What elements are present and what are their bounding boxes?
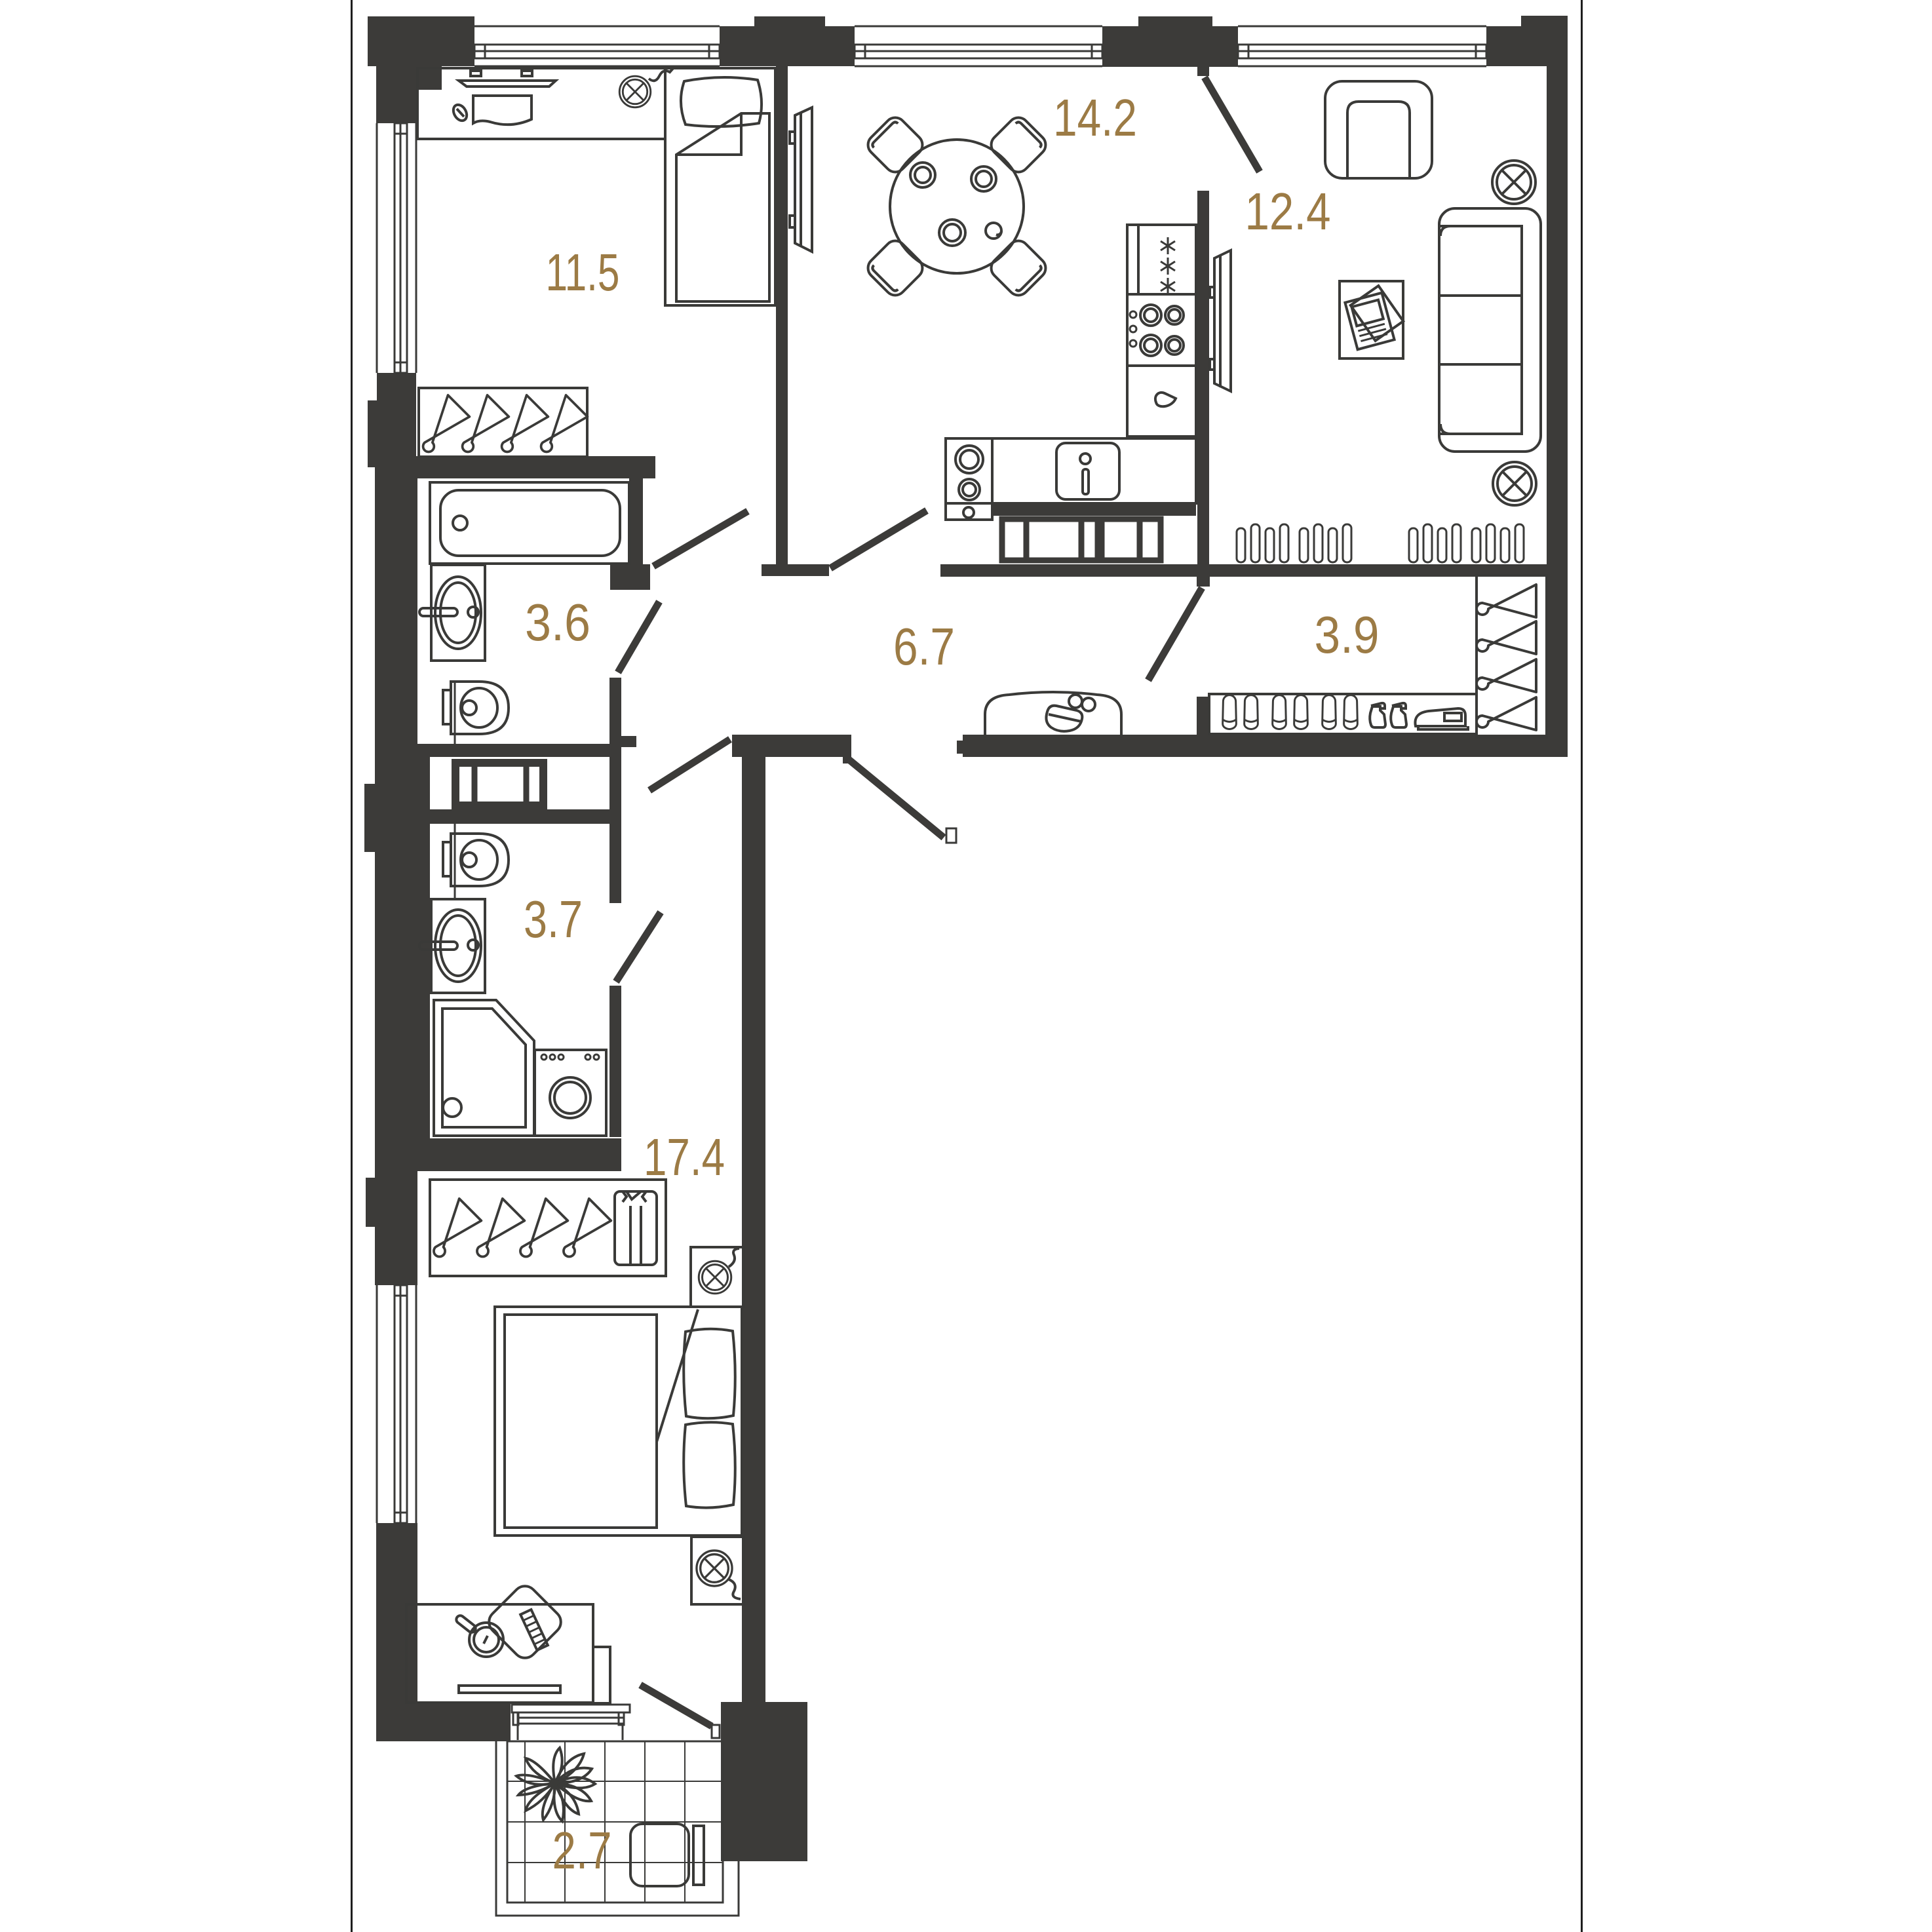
- svg-text:12.4: 12.4: [1245, 182, 1331, 241]
- svg-text:3.6: 3.6: [525, 593, 590, 651]
- svg-text:11.5: 11.5: [546, 243, 620, 301]
- svg-text:3.9: 3.9: [1315, 606, 1380, 664]
- svg-text:17.4: 17.4: [644, 1128, 725, 1186]
- svg-text:3.7: 3.7: [524, 890, 583, 948]
- svg-text:14.2: 14.2: [1053, 88, 1137, 147]
- svg-text:6.7: 6.7: [893, 617, 955, 676]
- svg-text:2.7: 2.7: [552, 1821, 612, 1880]
